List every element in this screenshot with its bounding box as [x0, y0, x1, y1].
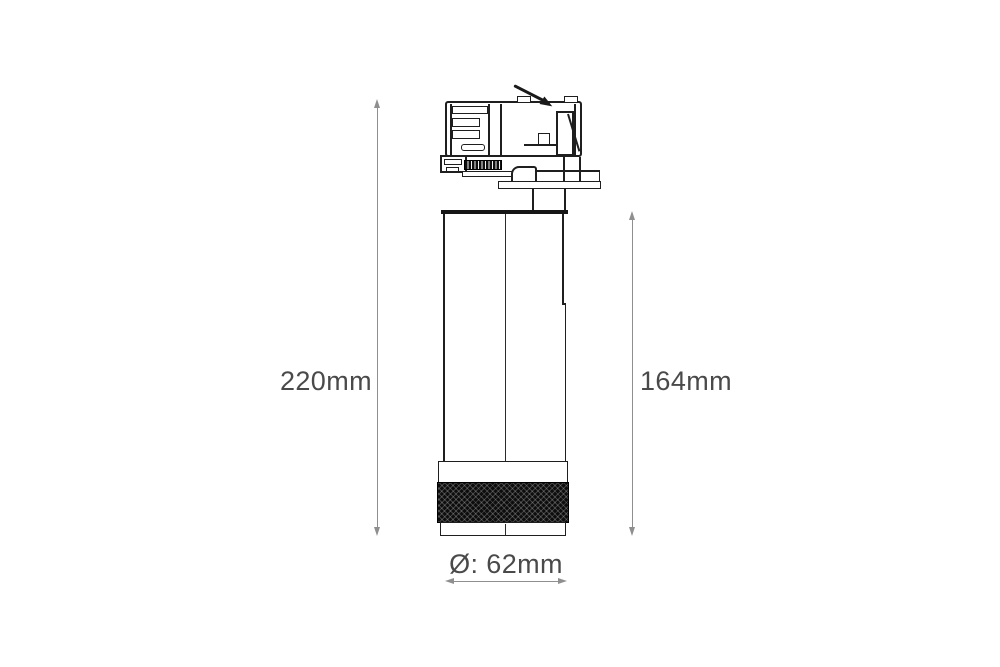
bottom-cap-seam	[505, 524, 506, 535]
dim-diameter-line	[453, 581, 559, 582]
adapter-divider-line-1	[488, 104, 490, 155]
dim-body-height-label: 164mm	[640, 368, 732, 395]
dim-overall-height-arrow-up-icon	[374, 99, 380, 108]
adapter-track-contact-bar-lower	[446, 167, 459, 172]
dim-body-height-arrow-up-icon	[629, 211, 635, 220]
adapter-contact-tooth-top	[452, 106, 488, 114]
adapter-contact-tab	[461, 144, 485, 151]
bezel-ring	[438, 461, 568, 483]
adapter-shelf	[462, 171, 517, 177]
bottom-cap	[440, 522, 566, 536]
adapter-top-tab-right	[564, 96, 578, 103]
adapter-spring-channel	[556, 111, 574, 156]
dim-body-height-line	[632, 219, 633, 528]
body-right-edge-lower	[565, 304, 567, 462]
adapter-track-contact-bar-upper	[444, 159, 462, 165]
body-right-edge-upper	[562, 214, 564, 304]
adapter-terminal-strip	[464, 160, 502, 170]
adapter-contact-tooth-mid	[452, 118, 480, 127]
adapter-top-tab-left	[517, 96, 531, 103]
adapter-right-inner-line	[574, 104, 576, 155]
dim-diameter-label: Ø: 62mm	[406, 551, 606, 578]
body-left-edge	[443, 214, 445, 462]
dim-overall-height-line	[377, 107, 378, 528]
technical-drawing-canvas: 220mm 164mm Ø: 62mm	[0, 0, 1000, 667]
body-center-seam	[505, 214, 506, 461]
dim-overall-height-label: 220mm	[250, 368, 372, 395]
adapter-contact-tooth-bottom	[452, 130, 480, 139]
adapter-right-column-left	[563, 157, 565, 181]
adapter-right-column-right	[579, 157, 581, 181]
knurled-focus-ring	[437, 482, 569, 523]
stem	[532, 189, 566, 211]
dim-body-height-arrow-down-icon	[629, 527, 635, 536]
adapter-divider-line-2	[500, 104, 502, 155]
dim-overall-height-arrow-down-icon	[374, 527, 380, 536]
mounting-arm-top-line	[535, 170, 600, 172]
adapter-center-clip-line	[524, 144, 558, 146]
mounting-arm-ledge	[498, 181, 601, 189]
